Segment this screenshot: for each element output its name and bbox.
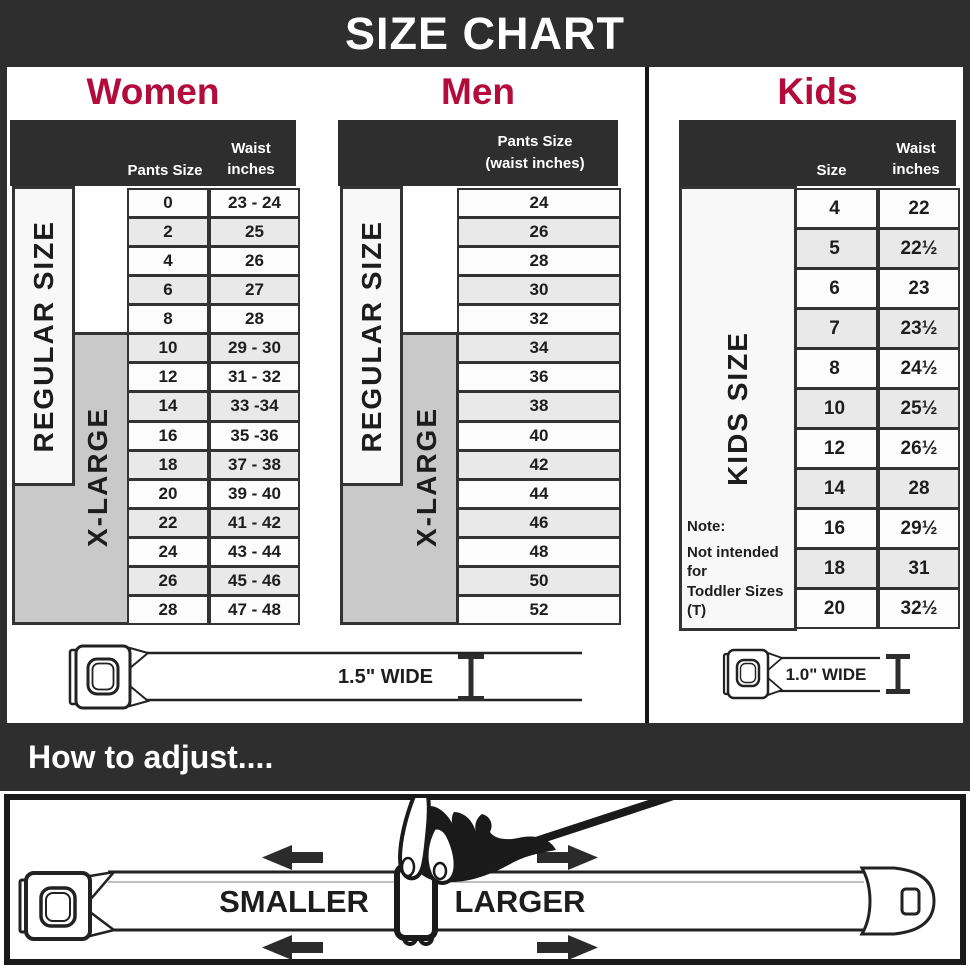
seatbelt-buckle-icon bbox=[724, 650, 782, 698]
table-cell: 22½ bbox=[880, 230, 958, 270]
table-cell: 22 bbox=[129, 510, 207, 539]
men-regular-size-box: REGULAR SIZE bbox=[340, 186, 403, 486]
table-cell: 6 bbox=[129, 277, 207, 306]
table-cell: 24½ bbox=[880, 350, 958, 390]
table-cell: 38 bbox=[459, 393, 619, 422]
table-cell: 22 bbox=[880, 190, 958, 230]
table-cell: 46 bbox=[459, 510, 619, 539]
table-cell: 29½ bbox=[880, 510, 958, 550]
women-waist-column: 23 - 242526272829 - 3031 - 3233 -3435 -3… bbox=[209, 188, 300, 625]
adult-belt-width-label: 1.5" WIDE bbox=[338, 666, 433, 688]
how-to-adjust-title: How to adjust.... bbox=[0, 739, 273, 776]
table-cell: 52 bbox=[459, 597, 619, 623]
table-cell: 14 bbox=[129, 393, 207, 422]
table-cell: 31 - 32 bbox=[211, 364, 298, 393]
table-cell: 43 - 44 bbox=[211, 539, 298, 568]
adult-belt-diagram: 1.5" WIDE bbox=[60, 642, 590, 718]
men-header-pants-size: Pants Size (waist inches) bbox=[455, 120, 615, 186]
belt-tongue bbox=[862, 868, 934, 934]
men-regular-size-label: REGULAR SIZE bbox=[356, 220, 388, 452]
table-cell: 32½ bbox=[880, 590, 958, 627]
table-cell: 26 bbox=[459, 219, 619, 248]
table-cell: 26½ bbox=[880, 430, 958, 470]
page-title: SIZE CHART bbox=[345, 8, 625, 60]
table-cell: 41 - 42 bbox=[211, 510, 298, 539]
kids-header-waist: Waist inches bbox=[876, 138, 956, 182]
men-xlarge-label-wrap: X-LARGE bbox=[397, 332, 456, 622]
kids-section-title: Kids bbox=[679, 71, 956, 113]
table-cell: 27 bbox=[211, 277, 298, 306]
kids-size-box: KIDS SIZE Note: Not intended for Toddler… bbox=[679, 186, 797, 631]
women-header-pants-size: Pants Size bbox=[118, 162, 212, 179]
larger-label: LARGER bbox=[455, 884, 586, 919]
table-cell: 28 bbox=[129, 597, 207, 623]
table-cell: 10 bbox=[129, 335, 207, 364]
table-cell: 25 bbox=[211, 219, 298, 248]
table-cell: 4 bbox=[793, 190, 876, 230]
table-cell: 28 bbox=[459, 248, 619, 277]
table-cell: 5 bbox=[793, 230, 876, 270]
table-cell: 25½ bbox=[880, 390, 958, 430]
women-regular-size-box: REGULAR SIZE bbox=[12, 186, 75, 486]
kids-belt-width-label: 1.0" WIDE bbox=[786, 665, 867, 684]
table-cell: 12 bbox=[793, 430, 876, 470]
smaller-label: SMALLER bbox=[219, 884, 369, 919]
table-cell: 32 bbox=[459, 306, 619, 335]
table-cell: 39 - 40 bbox=[211, 481, 298, 510]
table-cell: 29 - 30 bbox=[211, 335, 298, 364]
table-cell: 8 bbox=[129, 306, 207, 335]
frame-right-edge bbox=[963, 67, 970, 723]
size-chart-banner: SIZE CHART bbox=[0, 0, 970, 67]
table-cell: 12 bbox=[129, 364, 207, 393]
table-cell: 40 bbox=[459, 423, 619, 452]
seatbelt-buckle-icon bbox=[70, 646, 148, 708]
women-table-header: Pants Size Waist inches bbox=[10, 120, 296, 186]
table-cell: 4 bbox=[129, 248, 207, 277]
table-cell: 37 - 38 bbox=[211, 452, 298, 481]
men-pants-size-column: 242628303234363840424446485052 bbox=[457, 188, 621, 625]
table-cell: 0 bbox=[129, 190, 207, 219]
table-cell: 24 bbox=[129, 539, 207, 568]
table-cell: 26 bbox=[211, 248, 298, 277]
kids-size-column: 45678101214161820 bbox=[791, 188, 878, 629]
table-cell: 23½ bbox=[880, 310, 958, 350]
size-chart-infographic: SIZE CHART Women Pants Size Waist inches… bbox=[0, 0, 970, 971]
table-cell: 28 bbox=[880, 470, 958, 510]
table-cell: 10 bbox=[793, 390, 876, 430]
table-cell: 33 -34 bbox=[211, 393, 298, 422]
table-cell: 28 bbox=[211, 306, 298, 335]
table-cell: 31 bbox=[880, 550, 958, 590]
kids-table-header: Size Waist inches bbox=[679, 120, 956, 186]
table-cell: 48 bbox=[459, 539, 619, 568]
women-header-waist: Waist inches bbox=[208, 138, 294, 182]
kids-note: Note: Not intended for Toddler Sizes (T) bbox=[687, 517, 794, 620]
table-cell: 14 bbox=[793, 470, 876, 510]
women-regular-size-label: REGULAR SIZE bbox=[28, 220, 60, 452]
kids-size-label: KIDS SIZE bbox=[722, 331, 754, 486]
men-table-header: Pants Size (waist inches) bbox=[338, 120, 618, 186]
table-cell: 20 bbox=[793, 590, 876, 627]
table-cell: 18 bbox=[129, 452, 207, 481]
table-cell: 50 bbox=[459, 568, 619, 597]
table-cell: 26 bbox=[129, 568, 207, 597]
table-cell: 7 bbox=[793, 310, 876, 350]
table-cell: 2 bbox=[129, 219, 207, 248]
table-cell: 34 bbox=[459, 335, 619, 364]
how-to-adjust-bar: How to adjust.... bbox=[0, 723, 970, 791]
how-to-adjust-panel: SMALLER LARGER bbox=[4, 794, 966, 965]
table-cell: 8 bbox=[793, 350, 876, 390]
table-cell: 42 bbox=[459, 452, 619, 481]
women-section-title: Women bbox=[10, 71, 296, 113]
kids-header-size: Size bbox=[789, 162, 874, 179]
table-cell: 44 bbox=[459, 481, 619, 510]
table-cell: 47 - 48 bbox=[211, 597, 298, 623]
table-cell: 35 -36 bbox=[211, 423, 298, 452]
table-cell: 20 bbox=[129, 481, 207, 510]
table-cell: 18 bbox=[793, 550, 876, 590]
table-cell: 23 bbox=[880, 270, 958, 310]
table-cell: 16 bbox=[129, 423, 207, 452]
table-cell: 30 bbox=[459, 277, 619, 306]
table-cell: 36 bbox=[459, 364, 619, 393]
kids-waist-column: 2222½2323½24½25½26½2829½3132½ bbox=[878, 188, 960, 629]
women-xlarge-label-wrap: X-LARGE bbox=[69, 332, 127, 622]
frame-left-edge bbox=[0, 67, 7, 723]
table-cell: 24 bbox=[459, 190, 619, 219]
kids-belt-diagram: 1.0" WIDE bbox=[718, 646, 918, 702]
width-marker-icon bbox=[458, 654, 484, 701]
table-cell: 16 bbox=[793, 510, 876, 550]
width-marker-icon bbox=[886, 654, 910, 694]
table-cell: 45 - 46 bbox=[211, 568, 298, 597]
section-divider bbox=[645, 67, 649, 723]
table-cell: 6 bbox=[793, 270, 876, 310]
women-xlarge-label: X-LARGE bbox=[82, 407, 114, 547]
men-section-title: Men bbox=[338, 71, 618, 113]
men-xlarge-label: X-LARGE bbox=[411, 407, 443, 547]
table-cell: 23 - 24 bbox=[211, 190, 298, 219]
women-pants-size-column: 0246810121416182022242628 bbox=[127, 188, 209, 625]
